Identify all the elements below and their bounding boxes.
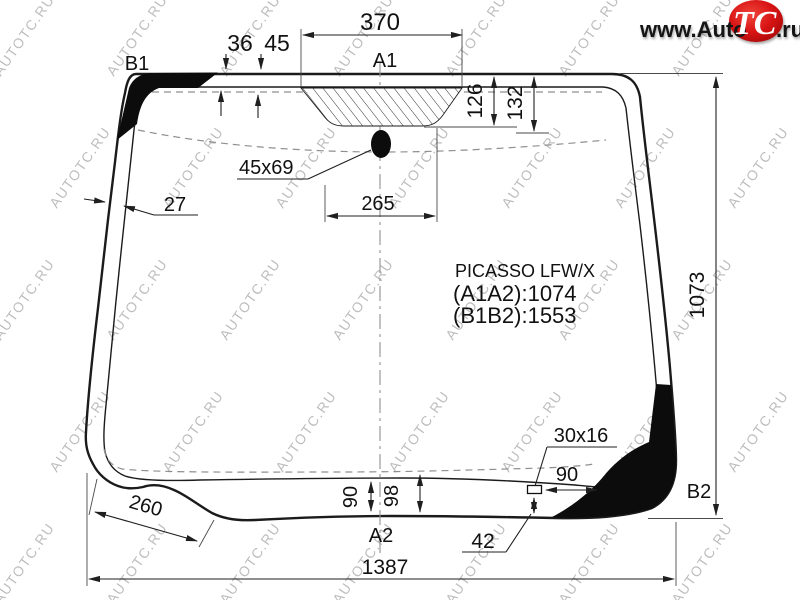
dim-265-label: 265 bbox=[361, 193, 394, 215]
sensor-size-label: 45x69 bbox=[239, 157, 294, 179]
dim-27-label: 27 bbox=[164, 194, 186, 216]
logo-ru-text: .ru bbox=[776, 17, 800, 42]
dim-36-label: 36 bbox=[227, 30, 253, 56]
logo-tc-text: TC bbox=[733, 5, 777, 42]
dim-45-label: 45 bbox=[264, 30, 290, 56]
sensor-ellipse bbox=[371, 130, 391, 158]
dim-1073-label: 1073 bbox=[686, 272, 709, 319]
glass-b1b2-label: (B1B2):1553 bbox=[453, 303, 577, 328]
dim-1387-label: 1387 bbox=[362, 556, 409, 579]
dim-42-label: 42 bbox=[471, 530, 494, 553]
dim-90-bracket-label: 90 bbox=[556, 464, 578, 486]
dim-126-label: 126 bbox=[464, 83, 487, 118]
windshield-drawing-page: AUTOTC.RUAUTOTC.RUAUTOTC.RUAUTOTC.RUAUTO… bbox=[0, 0, 800, 600]
logo-www-text: www.Auto bbox=[639, 17, 747, 42]
point-a1-label: A1 bbox=[373, 50, 397, 72]
windshield-diagram: AUTOTC.RUAUTOTC.RUAUTOTC.RUAUTOTC.RUAUTO… bbox=[0, 0, 800, 600]
bracket-size-label: 30x16 bbox=[554, 425, 609, 447]
dim-370-label: 370 bbox=[360, 9, 400, 36]
point-b1-label: B1 bbox=[125, 53, 149, 75]
point-a2-label: A2 bbox=[369, 525, 393, 547]
point-b2-label: B2 bbox=[687, 481, 711, 503]
glass-model-label: PICASSO LFW/X bbox=[455, 261, 595, 281]
dim-90-band-label: 90 bbox=[340, 486, 362, 508]
dim-132-label: 132 bbox=[504, 85, 527, 120]
dim-98-band-label: 98 bbox=[381, 485, 403, 507]
bracket-rect bbox=[528, 486, 542, 494]
